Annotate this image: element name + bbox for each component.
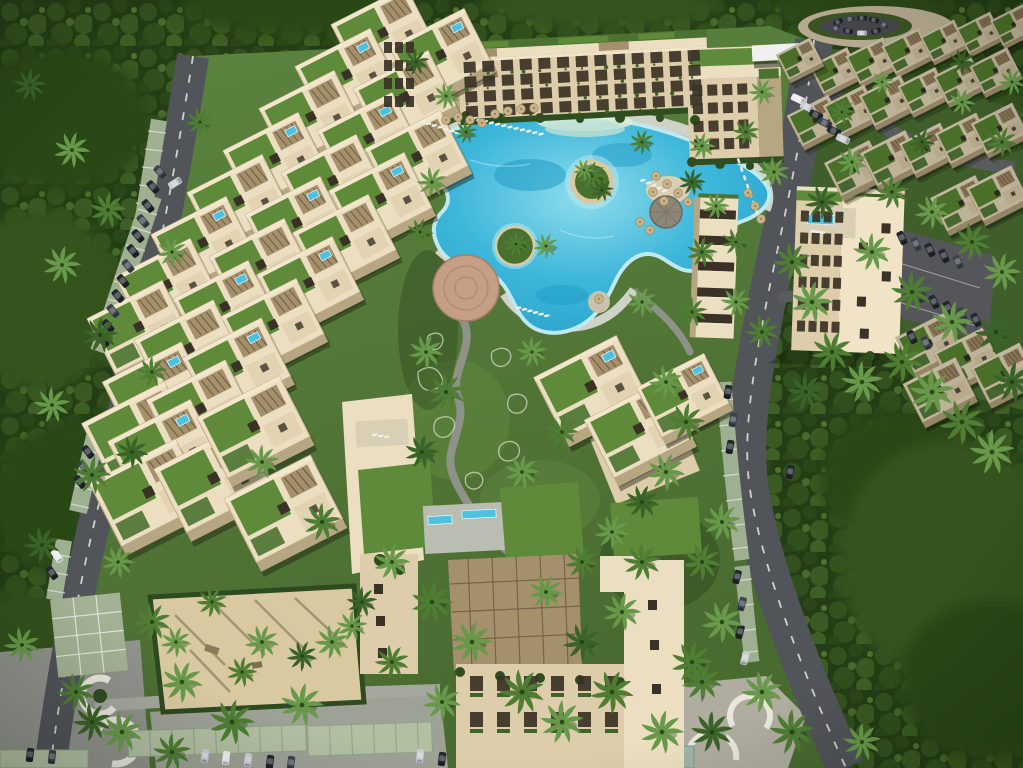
aerial-render: Aerial 3D architectural rendering of a t… — [0, 0, 1023, 768]
scene-svg: Aerial 3D architectural rendering of a t… — [0, 0, 1023, 768]
vignette — [0, 0, 1023, 768]
